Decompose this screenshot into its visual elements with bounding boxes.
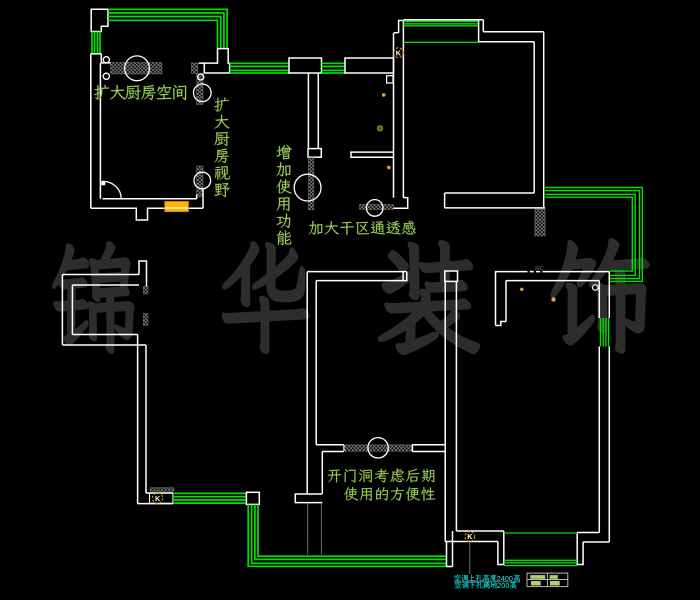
svg-text:K: K: [396, 48, 402, 57]
svg-text:0: 0: [505, 583, 509, 590]
svg-text:K: K: [467, 532, 473, 541]
svg-text:K: K: [155, 494, 161, 503]
